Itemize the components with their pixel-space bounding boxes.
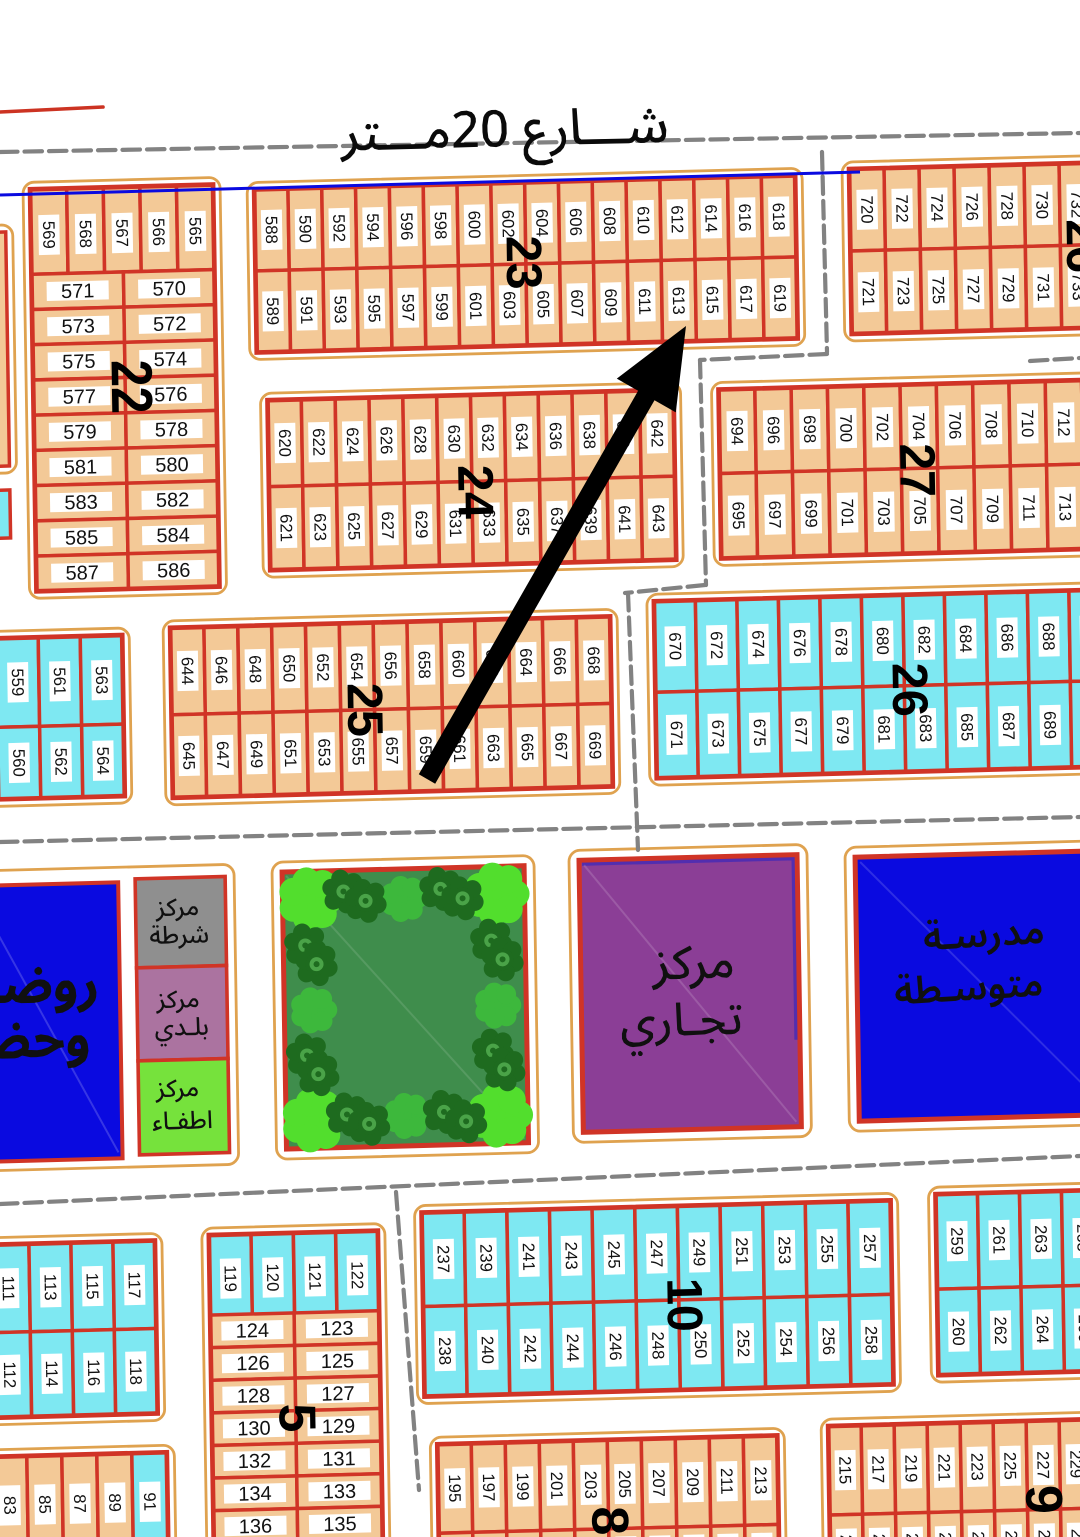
svg-text:590: 590 bbox=[295, 215, 314, 244]
svg-text:581: 581 bbox=[64, 456, 98, 479]
svg-text:26: 26 bbox=[1055, 218, 1080, 273]
svg-text:9: 9 bbox=[1014, 1484, 1072, 1514]
svg-text:712: 712 bbox=[1054, 408, 1073, 437]
svg-text:562: 562 bbox=[51, 747, 70, 776]
svg-text:652: 652 bbox=[313, 653, 332, 682]
svg-text:653: 653 bbox=[314, 738, 333, 767]
svg-text:588: 588 bbox=[262, 216, 281, 245]
svg-text:242: 242 bbox=[520, 1335, 539, 1364]
svg-text:609: 609 bbox=[601, 288, 620, 317]
svg-text:238: 238 bbox=[435, 1337, 454, 1366]
svg-text:599: 599 bbox=[432, 293, 451, 322]
svg-text:120: 120 bbox=[263, 1263, 282, 1292]
svg-text:8: 8 bbox=[580, 1506, 638, 1536]
svg-text:226: 226 bbox=[1002, 1530, 1021, 1537]
svg-text:710: 710 bbox=[1018, 409, 1037, 438]
svg-text:592: 592 bbox=[329, 214, 348, 243]
svg-text:559: 559 bbox=[8, 668, 27, 697]
svg-text:580: 580 bbox=[155, 454, 189, 477]
svg-text:27: 27 bbox=[889, 443, 946, 498]
svg-text:604: 604 bbox=[532, 209, 551, 238]
svg-text:199: 199 bbox=[513, 1472, 532, 1501]
svg-text:610: 610 bbox=[633, 206, 652, 235]
svg-text:727: 727 bbox=[963, 275, 982, 304]
svg-text:248: 248 bbox=[648, 1331, 667, 1360]
svg-text:704: 704 bbox=[909, 412, 928, 441]
svg-text:684: 684 bbox=[956, 624, 975, 653]
svg-text:575: 575 bbox=[62, 351, 96, 374]
svg-text:632: 632 bbox=[478, 423, 497, 452]
svg-text:132: 132 bbox=[238, 1450, 272, 1473]
svg-text:593: 593 bbox=[330, 295, 349, 324]
svg-text:664: 664 bbox=[516, 648, 535, 677]
svg-text:122: 122 bbox=[347, 1261, 366, 1290]
svg-text:600: 600 bbox=[464, 210, 483, 239]
svg-text:645: 645 bbox=[179, 742, 198, 771]
svg-text:239: 239 bbox=[476, 1244, 495, 1273]
svg-text:220: 220 bbox=[903, 1533, 922, 1537]
svg-text:266: 266 bbox=[1075, 1314, 1080, 1343]
svg-text:203: 203 bbox=[581, 1471, 600, 1500]
svg-text:605: 605 bbox=[533, 290, 552, 319]
svg-text:124: 124 bbox=[236, 1320, 270, 1343]
svg-text:241: 241 bbox=[519, 1243, 538, 1272]
svg-text:25: 25 bbox=[337, 682, 394, 737]
svg-text:22: 22 bbox=[99, 359, 165, 415]
svg-text:115: 115 bbox=[83, 1273, 102, 1300]
svg-text:731: 731 bbox=[1033, 273, 1052, 302]
svg-text:670: 670 bbox=[665, 632, 684, 661]
svg-text:621: 621 bbox=[276, 514, 295, 543]
svg-text:677: 677 bbox=[791, 717, 810, 746]
svg-text:649: 649 bbox=[247, 740, 266, 769]
svg-text:228: 228 bbox=[1035, 1529, 1054, 1537]
svg-text:713: 713 bbox=[1055, 493, 1074, 522]
svg-text:726: 726 bbox=[962, 193, 981, 222]
svg-text:606: 606 bbox=[566, 208, 585, 237]
svg-text:619: 619 bbox=[770, 284, 789, 313]
svg-text:259: 259 bbox=[947, 1227, 966, 1256]
svg-text:560: 560 bbox=[9, 749, 28, 778]
svg-text:205: 205 bbox=[615, 1470, 634, 1499]
svg-text:623: 623 bbox=[310, 513, 329, 542]
svg-text:128: 128 bbox=[237, 1385, 271, 1408]
svg-text:683: 683 bbox=[916, 714, 935, 743]
svg-text:247: 247 bbox=[647, 1239, 666, 1268]
svg-text:689: 689 bbox=[1040, 711, 1059, 740]
svg-text:611: 611 bbox=[635, 288, 654, 315]
svg-text:603: 603 bbox=[500, 291, 519, 320]
svg-text:616: 616 bbox=[735, 203, 754, 232]
svg-text:207: 207 bbox=[649, 1469, 668, 1498]
svg-text:672: 672 bbox=[707, 631, 726, 660]
svg-text:705: 705 bbox=[910, 497, 929, 526]
svg-text:262: 262 bbox=[991, 1316, 1010, 1345]
svg-text:229: 229 bbox=[1066, 1450, 1080, 1479]
svg-text:579: 579 bbox=[63, 421, 97, 444]
svg-text:696: 696 bbox=[764, 416, 783, 445]
svg-text:617: 617 bbox=[736, 285, 755, 314]
svg-text:119: 119 bbox=[221, 1265, 240, 1292]
svg-text:23: 23 bbox=[495, 235, 552, 290]
svg-text:634: 634 bbox=[512, 423, 531, 452]
svg-text:258: 258 bbox=[861, 1326, 880, 1355]
svg-text:660: 660 bbox=[448, 650, 467, 679]
svg-text:614: 614 bbox=[701, 204, 720, 233]
svg-text:572: 572 bbox=[153, 313, 187, 336]
svg-text:195: 195 bbox=[445, 1474, 464, 1503]
svg-text:607: 607 bbox=[567, 289, 586, 318]
svg-text:211: 211 bbox=[717, 1468, 736, 1495]
svg-text:112: 112 bbox=[0, 1361, 19, 1388]
svg-text:586: 586 bbox=[157, 560, 191, 583]
svg-text:728: 728 bbox=[997, 192, 1016, 221]
svg-text:135: 135 bbox=[323, 1513, 357, 1536]
svg-text:648: 648 bbox=[245, 655, 264, 684]
svg-text:622: 622 bbox=[309, 428, 328, 457]
svg-text:699: 699 bbox=[801, 499, 820, 528]
svg-text:630: 630 bbox=[444, 424, 463, 453]
svg-text:635: 635 bbox=[513, 508, 532, 537]
svg-text:117: 117 bbox=[125, 1271, 144, 1298]
svg-text:720: 720 bbox=[857, 195, 876, 224]
svg-text:85: 85 bbox=[35, 1495, 54, 1514]
svg-text:700: 700 bbox=[836, 414, 855, 443]
svg-text:263: 263 bbox=[1031, 1225, 1050, 1254]
svg-text:681: 681 bbox=[874, 715, 893, 744]
svg-text:577: 577 bbox=[63, 386, 97, 409]
svg-text:136: 136 bbox=[239, 1515, 273, 1537]
svg-text:121: 121 bbox=[305, 1262, 324, 1291]
svg-text:123: 123 bbox=[320, 1318, 354, 1341]
svg-text:569: 569 bbox=[39, 221, 58, 250]
svg-text:596: 596 bbox=[397, 212, 416, 241]
svg-text:582: 582 bbox=[156, 489, 190, 512]
svg-text:215: 215 bbox=[835, 1456, 854, 1485]
svg-text:254: 254 bbox=[776, 1328, 795, 1357]
svg-text:723: 723 bbox=[893, 277, 912, 306]
svg-text:729: 729 bbox=[998, 274, 1017, 303]
svg-text:113: 113 bbox=[41, 1274, 60, 1301]
svg-text:679: 679 bbox=[833, 716, 852, 745]
svg-text:706: 706 bbox=[945, 411, 964, 440]
svg-text:251: 251 bbox=[732, 1237, 751, 1266]
svg-text:217: 217 bbox=[868, 1455, 887, 1484]
svg-text:209: 209 bbox=[683, 1468, 702, 1497]
svg-text:587: 587 bbox=[65, 562, 99, 585]
svg-text:225: 225 bbox=[1000, 1452, 1019, 1481]
svg-text:201: 201 bbox=[547, 1471, 566, 1500]
svg-text:730: 730 bbox=[1032, 191, 1051, 220]
svg-text:613: 613 bbox=[669, 286, 688, 315]
svg-text:636: 636 bbox=[546, 422, 565, 451]
svg-text:591: 591 bbox=[297, 296, 316, 325]
svg-text:116: 116 bbox=[84, 1359, 103, 1386]
svg-text:629: 629 bbox=[412, 510, 431, 539]
svg-text:264: 264 bbox=[1033, 1315, 1052, 1344]
svg-text:250: 250 bbox=[691, 1330, 710, 1359]
svg-text:641: 641 bbox=[615, 505, 634, 534]
svg-text:245: 245 bbox=[604, 1240, 623, 1269]
svg-text:651: 651 bbox=[281, 739, 300, 768]
svg-text:583: 583 bbox=[64, 492, 98, 515]
svg-text:133: 133 bbox=[323, 1481, 357, 1504]
svg-text:703: 703 bbox=[874, 497, 893, 526]
svg-text:230: 230 bbox=[1068, 1528, 1080, 1537]
svg-text:563: 563 bbox=[92, 666, 111, 695]
svg-text:678: 678 bbox=[831, 628, 850, 657]
svg-text:711: 711 bbox=[1019, 494, 1038, 521]
svg-text:685: 685 bbox=[957, 713, 976, 742]
svg-text:573: 573 bbox=[61, 315, 95, 338]
svg-text:130: 130 bbox=[237, 1418, 271, 1441]
svg-text:564: 564 bbox=[93, 746, 112, 775]
svg-text:642: 642 bbox=[647, 419, 666, 448]
svg-text:565: 565 bbox=[185, 217, 204, 246]
svg-text:125: 125 bbox=[321, 1350, 355, 1373]
svg-text:628: 628 bbox=[410, 425, 429, 454]
svg-text:595: 595 bbox=[364, 294, 383, 323]
svg-text:658: 658 bbox=[415, 650, 434, 679]
svg-text:624: 624 bbox=[343, 427, 362, 456]
svg-text:654: 654 bbox=[347, 652, 366, 681]
svg-text:568: 568 bbox=[76, 220, 95, 249]
svg-text:626: 626 bbox=[376, 426, 395, 455]
svg-text:724: 724 bbox=[927, 193, 946, 222]
svg-text:598: 598 bbox=[431, 211, 450, 240]
svg-text:709: 709 bbox=[983, 495, 1002, 524]
svg-text:608: 608 bbox=[600, 207, 619, 236]
svg-text:656: 656 bbox=[381, 651, 400, 680]
svg-text:83: 83 bbox=[0, 1496, 19, 1515]
svg-text:265: 265 bbox=[1073, 1224, 1080, 1253]
svg-text:702: 702 bbox=[872, 413, 891, 442]
svg-text:197: 197 bbox=[479, 1473, 498, 1502]
svg-text:10: 10 bbox=[656, 1277, 713, 1332]
svg-text:223: 223 bbox=[967, 1452, 986, 1481]
svg-text:612: 612 bbox=[667, 205, 686, 234]
svg-text:725: 725 bbox=[928, 276, 947, 305]
svg-text:578: 578 bbox=[155, 419, 189, 442]
svg-text:674: 674 bbox=[748, 630, 767, 659]
svg-text:87: 87 bbox=[70, 1494, 89, 1513]
svg-text:638: 638 bbox=[579, 421, 598, 450]
svg-text:707: 707 bbox=[946, 496, 965, 525]
svg-text:676: 676 bbox=[790, 629, 809, 658]
svg-text:126: 126 bbox=[236, 1352, 270, 1375]
svg-text:669: 669 bbox=[585, 731, 604, 760]
svg-text:256: 256 bbox=[819, 1327, 838, 1356]
svg-text:667: 667 bbox=[551, 732, 570, 761]
svg-text:255: 255 bbox=[817, 1235, 836, 1264]
svg-text:601: 601 bbox=[466, 292, 485, 321]
svg-text:237: 237 bbox=[434, 1245, 453, 1274]
svg-text:694: 694 bbox=[727, 417, 746, 446]
svg-text:671: 671 bbox=[667, 720, 686, 749]
svg-text:111: 111 bbox=[0, 1275, 18, 1301]
svg-text:627: 627 bbox=[378, 511, 397, 540]
svg-text:721: 721 bbox=[858, 278, 877, 307]
svg-text:567: 567 bbox=[112, 219, 131, 248]
svg-text:698: 698 bbox=[800, 415, 819, 444]
svg-text:668: 668 bbox=[584, 646, 603, 675]
svg-text:733: 733 bbox=[1068, 272, 1080, 301]
svg-text:597: 597 bbox=[398, 293, 417, 322]
svg-text:732: 732 bbox=[1067, 190, 1080, 219]
svg-text:602: 602 bbox=[498, 209, 517, 238]
svg-text:571: 571 bbox=[61, 280, 95, 303]
svg-text:697: 697 bbox=[765, 500, 784, 529]
svg-text:89: 89 bbox=[105, 1493, 124, 1512]
svg-text:114: 114 bbox=[42, 1360, 61, 1387]
svg-text:666: 666 bbox=[550, 647, 569, 676]
svg-text:675: 675 bbox=[750, 718, 769, 747]
svg-text:618: 618 bbox=[769, 202, 788, 231]
svg-text:650: 650 bbox=[279, 654, 298, 683]
svg-text:701: 701 bbox=[837, 498, 856, 527]
svg-text:26: 26 bbox=[881, 662, 938, 717]
svg-text:657: 657 bbox=[382, 736, 401, 765]
svg-text:240: 240 bbox=[478, 1336, 497, 1365]
svg-text:131: 131 bbox=[322, 1448, 356, 1471]
svg-text:249: 249 bbox=[689, 1238, 708, 1267]
svg-text:218: 218 bbox=[870, 1534, 889, 1537]
svg-text:682: 682 bbox=[914, 625, 933, 654]
svg-text:686: 686 bbox=[997, 623, 1016, 652]
svg-text:673: 673 bbox=[708, 719, 727, 748]
svg-text:566: 566 bbox=[149, 218, 168, 247]
svg-text:221: 221 bbox=[934, 1453, 953, 1482]
svg-text:585: 585 bbox=[65, 527, 99, 550]
svg-text:665: 665 bbox=[517, 733, 536, 762]
svg-text:227: 227 bbox=[1033, 1451, 1052, 1480]
svg-text:91: 91 bbox=[140, 1492, 159, 1511]
svg-text:644: 644 bbox=[178, 657, 197, 686]
svg-text:224: 224 bbox=[969, 1531, 988, 1537]
svg-text:688: 688 bbox=[1039, 622, 1058, 651]
svg-text:222: 222 bbox=[936, 1532, 955, 1537]
svg-text:261: 261 bbox=[989, 1226, 1008, 1255]
svg-text:219: 219 bbox=[901, 1454, 920, 1483]
svg-text:118: 118 bbox=[126, 1358, 145, 1385]
svg-text:257: 257 bbox=[860, 1234, 879, 1263]
svg-text:625: 625 bbox=[344, 512, 363, 541]
svg-text:589: 589 bbox=[263, 297, 282, 326]
svg-text:620: 620 bbox=[275, 429, 294, 458]
svg-text:561: 561 bbox=[50, 667, 69, 696]
svg-text:680: 680 bbox=[873, 627, 892, 656]
svg-text:584: 584 bbox=[156, 524, 190, 547]
svg-text:647: 647 bbox=[213, 741, 232, 770]
svg-text:615: 615 bbox=[702, 286, 721, 315]
svg-text:687: 687 bbox=[999, 712, 1018, 741]
svg-text:213: 213 bbox=[751, 1466, 770, 1495]
svg-text:253: 253 bbox=[775, 1236, 794, 1265]
svg-text:243: 243 bbox=[561, 1241, 580, 1270]
svg-text:708: 708 bbox=[981, 410, 1000, 439]
svg-text:695: 695 bbox=[729, 501, 748, 530]
svg-text:594: 594 bbox=[363, 213, 382, 242]
svg-text:646: 646 bbox=[212, 656, 231, 685]
svg-text:252: 252 bbox=[733, 1329, 752, 1358]
svg-text:260: 260 bbox=[949, 1317, 968, 1346]
svg-text:244: 244 bbox=[563, 1333, 582, 1362]
svg-text:722: 722 bbox=[892, 194, 911, 223]
svg-text:570: 570 bbox=[152, 278, 186, 301]
svg-text:643: 643 bbox=[649, 504, 668, 533]
svg-text:5: 5 bbox=[267, 1403, 325, 1433]
svg-text:663: 663 bbox=[484, 734, 503, 763]
svg-text:134: 134 bbox=[238, 1483, 272, 1506]
svg-text:246: 246 bbox=[606, 1332, 625, 1361]
svg-text:655: 655 bbox=[348, 737, 367, 766]
svg-text:24: 24 bbox=[447, 464, 504, 520]
